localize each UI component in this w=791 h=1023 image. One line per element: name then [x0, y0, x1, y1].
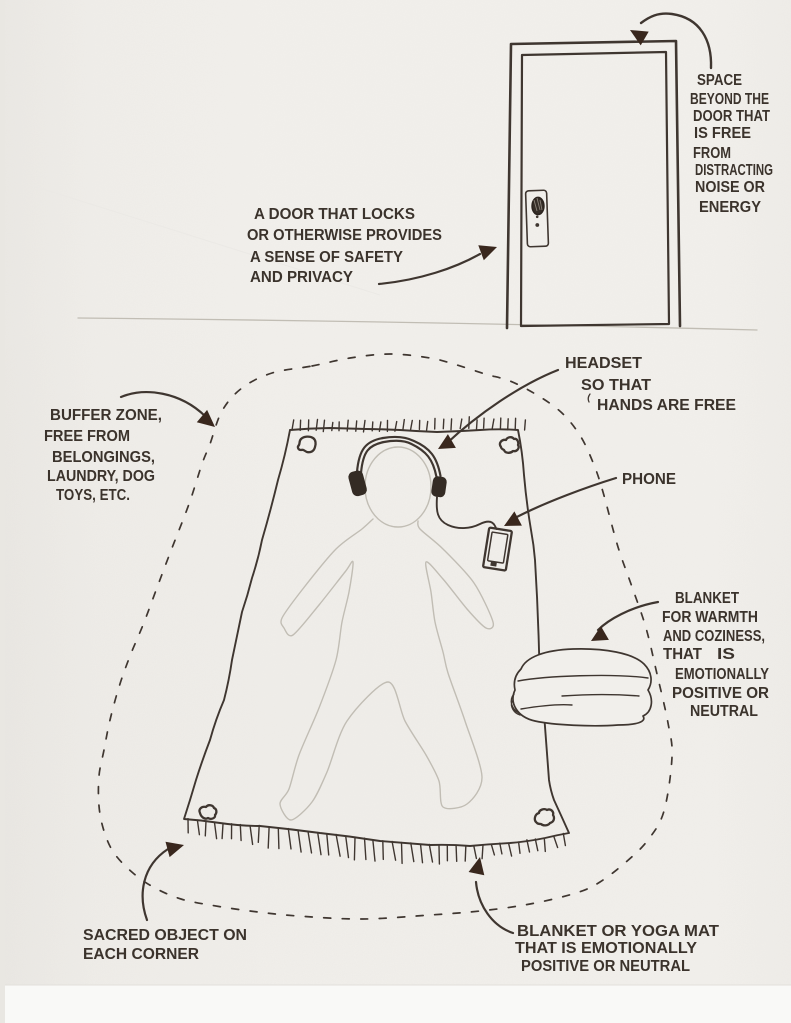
svg-text:POSITIVE OR NEUTRAL: POSITIVE OR NEUTRAL [521, 958, 690, 975]
svg-text:ENERGY: ENERGY [699, 199, 761, 216]
svg-text:HANDS ARE FREE: HANDS ARE FREE [597, 397, 736, 414]
svg-text:BELONGINGS,: BELONGINGS, [52, 449, 155, 466]
svg-text:SO THAT: SO THAT [581, 377, 651, 394]
svg-text:BEYOND THE: BEYOND THE [690, 91, 769, 108]
svg-text:AND PRIVACY: AND PRIVACY [250, 269, 353, 286]
svg-text:FROM: FROM [693, 145, 731, 162]
svg-text:FOR WARMTH: FOR WARMTH [662, 609, 758, 626]
svg-text:SPACE: SPACE [697, 72, 742, 89]
svg-text:THAT IS EMOTIONALLY: THAT IS EMOTIONALLY [515, 940, 697, 957]
svg-text:PHONE: PHONE [622, 471, 676, 488]
svg-text:A SENSE OF SAFETY: A SENSE OF SAFETY [250, 249, 403, 266]
svg-text:IS FREE: IS FREE [694, 125, 751, 142]
svg-text:DOOR THAT: DOOR THAT [693, 108, 770, 125]
svg-text:TOYS, ETC.: TOYS, ETC. [56, 487, 130, 504]
svg-text:NEUTRAL: NEUTRAL [690, 703, 758, 720]
svg-text:HEADSET: HEADSET [565, 355, 642, 372]
svg-text:A DOOR THAT LOCKS: A DOOR THAT LOCKS [254, 206, 415, 223]
svg-text:SACRED OBJECT ON: SACRED OBJECT ON [83, 927, 247, 944]
svg-text:AND COZINESS,: AND COZINESS, [663, 628, 765, 645]
svg-text:BUFFER ZONE,: BUFFER ZONE, [50, 407, 162, 424]
svg-text:LAUNDRY, DOG: LAUNDRY, DOG [47, 468, 155, 485]
svg-text:POSITIVE OR: POSITIVE OR [672, 685, 769, 702]
svg-text:DISTRACTING: DISTRACTING [695, 162, 773, 179]
svg-text:IS: IS [717, 646, 735, 663]
svg-text:EMOTIONALLY: EMOTIONALLY [675, 666, 769, 683]
svg-text:THAT: THAT [663, 646, 702, 663]
svg-text:BLANKET: BLANKET [675, 590, 739, 607]
svg-text:BLANKET OR YOGA MAT: BLANKET OR YOGA MAT [517, 923, 719, 940]
svg-text:NOISE OR: NOISE OR [695, 179, 765, 196]
svg-text:OR OTHERWISE PROVIDES: OR OTHERWISE PROVIDES [247, 227, 442, 244]
svg-text:FREE FROM: FREE FROM [44, 428, 130, 445]
svg-text:EACH CORNER: EACH CORNER [83, 946, 199, 963]
